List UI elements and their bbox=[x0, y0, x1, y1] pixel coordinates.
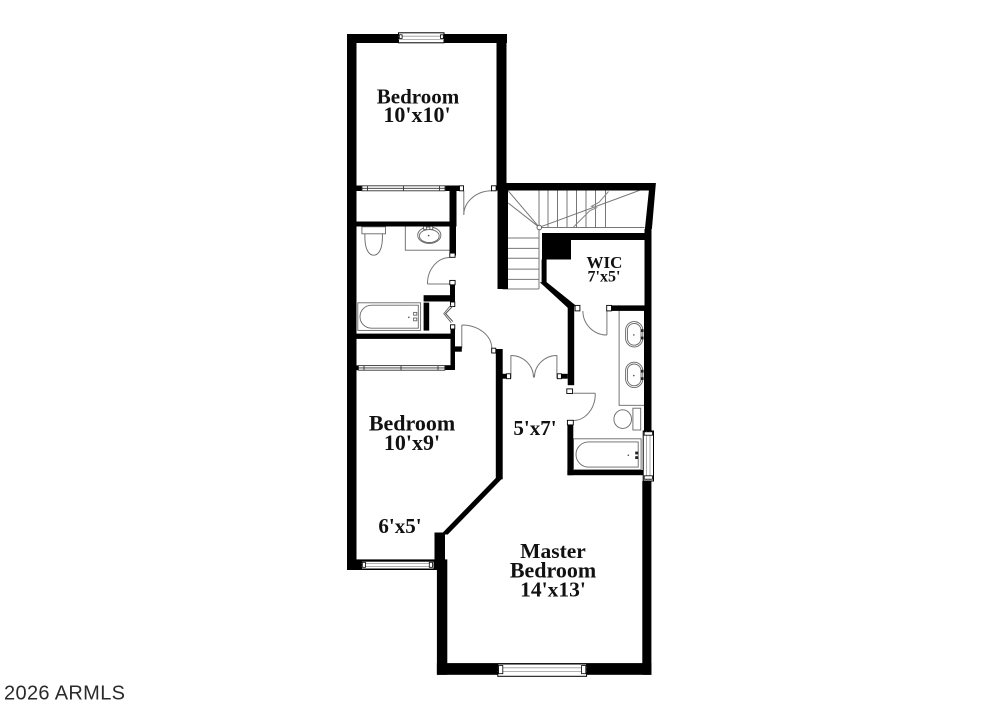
svg-text:6'x5': 6'x5' bbox=[378, 514, 421, 538]
svg-text:7'x5': 7'x5' bbox=[588, 269, 621, 286]
svg-text:5'x7': 5'x7' bbox=[513, 416, 556, 440]
svg-text:10'x10': 10'x10' bbox=[383, 102, 450, 127]
svg-text:2026 ARMLS: 2026 ARMLS bbox=[4, 683, 125, 705]
svg-text:14'x13': 14'x13' bbox=[520, 578, 586, 602]
svg-text:10'x9': 10'x9' bbox=[384, 430, 440, 455]
